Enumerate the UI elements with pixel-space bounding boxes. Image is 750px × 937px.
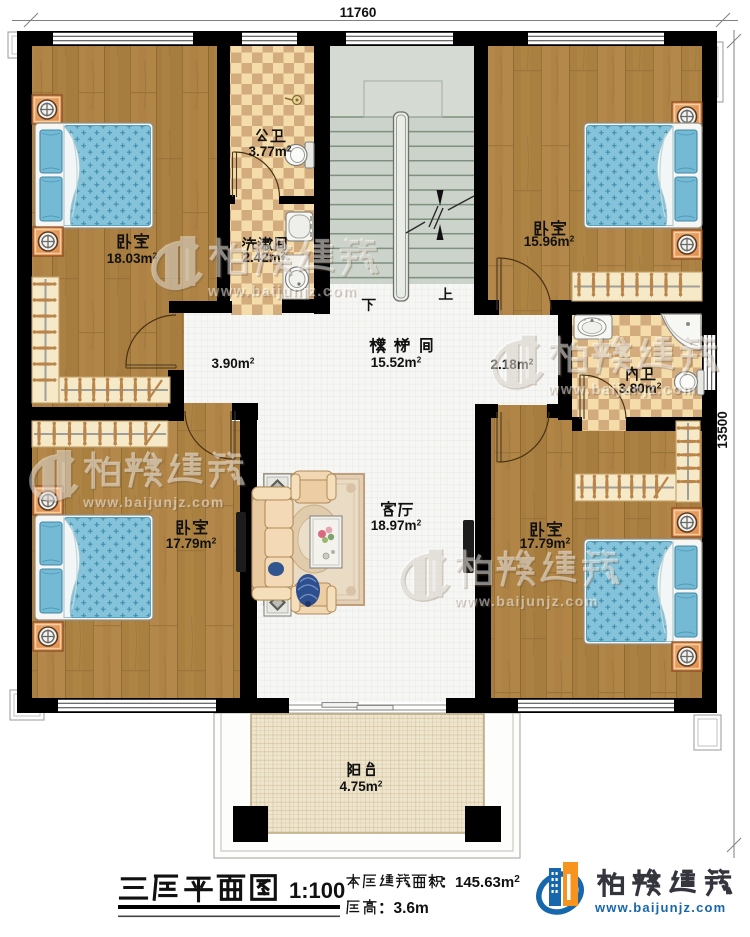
svg-text:17.79m2: 17.79m2 (166, 535, 217, 551)
svg-text:1:100: 1:100 (289, 878, 345, 903)
svg-text:：145.63m2: ：145.63m2 (440, 874, 520, 891)
svg-text:18.03m2: 18.03m2 (107, 250, 158, 266)
svg-text:www.baijunjz.com: www.baijunjz.com (594, 900, 726, 915)
svg-text:15.96m2: 15.96m2 (524, 233, 575, 249)
svg-text:www.baijunjz.com: www.baijunjz.com (82, 495, 225, 510)
svg-text:4.75m2: 4.75m2 (340, 778, 383, 794)
svg-text:3.77m2: 3.77m2 (249, 143, 292, 159)
svg-text:：3.6m: ：3.6m (378, 900, 429, 917)
svg-text:www.baijunjz.com: www.baijunjz.com (547, 382, 697, 398)
svg-text:18.97m2: 18.97m2 (371, 517, 422, 533)
svg-text:13500: 13500 (715, 411, 730, 449)
svg-text:17.79m2: 17.79m2 (520, 535, 571, 551)
svg-text:3.90m2: 3.90m2 (212, 355, 255, 371)
svg-text:11760: 11760 (340, 5, 377, 20)
svg-text:15.52m2: 15.52m2 (371, 354, 422, 370)
svg-text:www.baijunjz.com: www.baijunjz.com (453, 593, 599, 609)
svg-text:www.baijunjz.com: www.baijunjz.com (207, 284, 357, 300)
